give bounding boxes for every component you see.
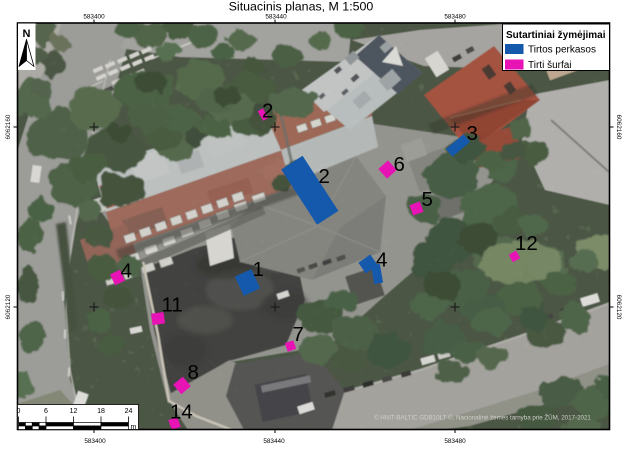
svg-text:583400: 583400 [84,438,106,445]
svg-text:6062120: 6062120 [5,294,12,319]
svg-text:2: 2 [262,100,273,123]
svg-text:11: 11 [162,294,183,317]
svg-text:4: 4 [121,260,132,283]
svg-text:Situacinis planas, M 1:500: Situacinis planas, M 1:500 [229,0,374,14]
svg-text:6062160: 6062160 [5,114,12,139]
svg-text:583480: 583480 [444,14,466,21]
svg-text:583440: 583440 [263,438,285,445]
svg-text:3: 3 [467,122,478,145]
svg-text:4: 4 [376,249,387,272]
svg-text:m: m [131,424,137,431]
svg-text:14: 14 [170,401,193,424]
svg-text:0: 0 [17,408,21,415]
svg-text:583480: 583480 [444,438,466,445]
svg-text:18: 18 [97,408,105,415]
svg-text:7: 7 [293,323,304,346]
svg-text:Tirti šurfai: Tirti šurfai [528,60,572,71]
svg-text:6: 6 [44,408,48,415]
svg-text:12: 12 [515,232,538,255]
svg-text:6062120: 6062120 [615,295,622,320]
svg-text:6: 6 [394,153,405,176]
svg-text:© HNIT-BALTIC GDB10LT ©, Nacio: © HNIT-BALTIC GDB10LT ©, Nacionalinė žem… [374,414,591,422]
svg-text:24: 24 [125,408,133,415]
svg-text:Sutartiniai žymėjimai: Sutartiniai žymėjimai [506,30,606,41]
svg-text:583440: 583440 [265,14,287,21]
svg-text:8: 8 [188,361,199,384]
svg-text:583400: 583400 [83,14,105,21]
svg-text:N: N [23,28,31,40]
svg-text:Tirtos perkasos: Tirtos perkasos [528,45,596,56]
svg-text:5: 5 [422,188,433,211]
svg-text:2: 2 [319,165,330,188]
svg-text:6062160: 6062160 [615,115,622,140]
svg-text:1: 1 [253,258,264,281]
svg-text:12: 12 [70,408,78,415]
